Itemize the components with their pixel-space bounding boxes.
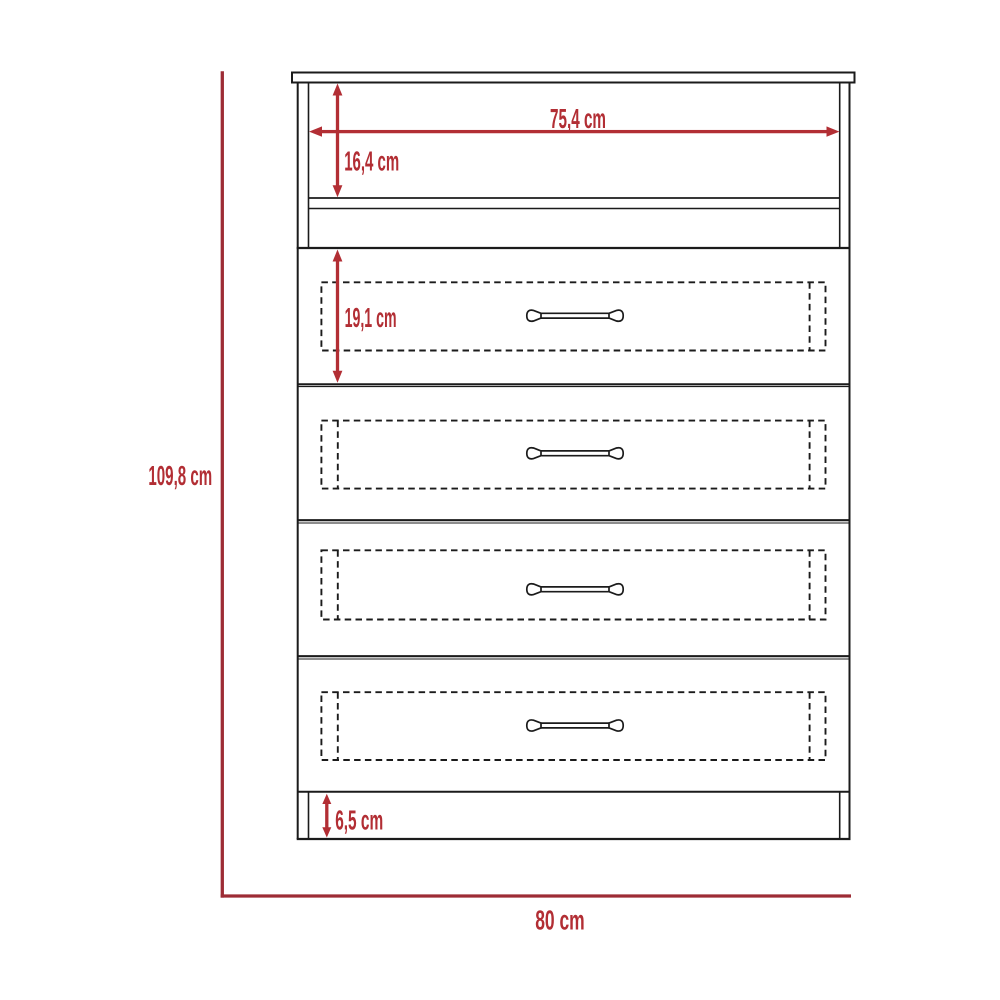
svg-text:6,5 cm: 6,5 cm bbox=[335, 805, 383, 836]
svg-text:80 cm: 80 cm bbox=[535, 904, 585, 935]
svg-text:109,8 cm: 109,8 cm bbox=[148, 460, 212, 491]
svg-text:19,1 cm: 19,1 cm bbox=[345, 302, 397, 333]
svg-text:75,4 cm: 75,4 cm bbox=[550, 103, 606, 134]
svg-text:16,4 cm: 16,4 cm bbox=[344, 146, 399, 177]
